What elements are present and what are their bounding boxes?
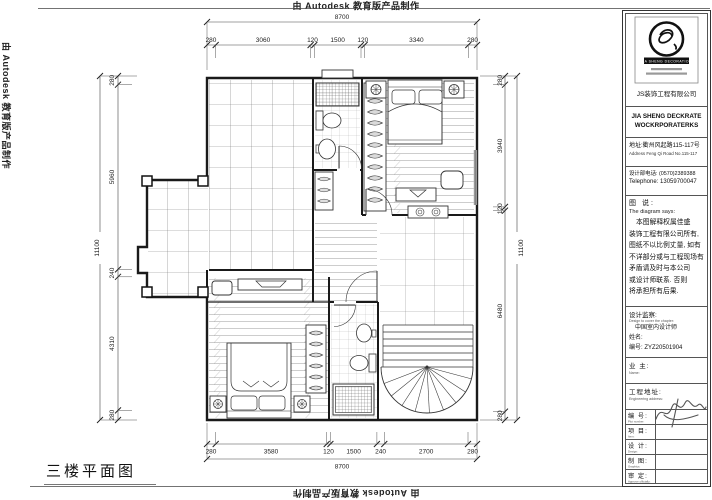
row-label-en: Design: — [628, 450, 652, 454]
toilet-1-tank — [316, 111, 323, 130]
shower-tray-1 — [316, 83, 359, 106]
row-design: 设 计:Design: — [626, 440, 707, 455]
dim-label: 120 — [497, 203, 504, 214]
row-label: 设 计: — [628, 441, 655, 450]
dim-label: 280 — [497, 410, 504, 421]
toilet-2-bowl — [350, 356, 368, 371]
dim-bottom: 280 3580 120 1500 240 2700 280 8700 — [204, 423, 480, 471]
chair-1 — [441, 171, 463, 189]
design-supervision-section: 设计监察: Design to cover the chapter: 中国室内设… — [626, 307, 707, 358]
row-label-en: Plot number: — [628, 420, 652, 424]
dim-label: 280 — [206, 37, 217, 44]
flue-box — [322, 70, 353, 78]
dim-label: 11100 — [518, 239, 525, 256]
row-approve: 审 定:Approve officially: — [626, 470, 707, 484]
lamp-icon — [371, 85, 381, 95]
row-value — [656, 440, 707, 454]
plan-title-underline — [44, 484, 156, 485]
dim-label: 280 — [109, 74, 116, 85]
floor-plan-svg: 8700 280 3060 120 1500 120 3340 280 — [0, 0, 712, 500]
dim-label: 11100 — [94, 239, 101, 256]
company-logo-section: JIA SHENG DECORATION JS装饰工程有限公司 — [626, 14, 707, 107]
company-name-en: JIA SHENG DECKRATE WOCKRPORATERKS — [626, 107, 707, 138]
drawing-sheet: 由 Autodesk 教育版产品制作 由 Autodesk 教育版产品制作 由 … — [0, 0, 712, 500]
address-section: 地址:衢州风起路115-117号 Address Feng Qi Road No… — [626, 138, 707, 167]
terrace-tiles — [209, 80, 312, 269]
dim-label: 3340 — [409, 37, 424, 44]
dim-label: 1500 — [346, 449, 361, 456]
project-address-label: 工程地址: — [629, 386, 704, 396]
dim-label: 120 — [357, 37, 368, 44]
phone-cn: 设计部电话: (0570)2389388 — [629, 169, 704, 177]
says-line: 图纸不以比例丈量, 如有 — [629, 240, 704, 252]
wardrobe-2 — [306, 325, 326, 393]
sink-2 — [357, 324, 372, 342]
dim-label: 3940 — [497, 138, 504, 153]
row-label: 制 图: — [628, 456, 655, 465]
dim-label: 1500 — [330, 37, 345, 44]
says-line: 将承担所有后果. — [629, 286, 704, 298]
supervision-line: 中国室内设计师 — [629, 323, 704, 333]
phone-section: 设计部电话: (0570)2389388 Telephone: 13059700… — [626, 167, 707, 196]
fan-stairs — [381, 366, 473, 413]
logo-circle — [650, 23, 683, 56]
dim-right: 280 3940 120 6480 280 11100 — [480, 73, 526, 423]
says-line: 不详部分或与工程现场有 — [629, 252, 704, 264]
supervision-line: 姓名: — [629, 333, 704, 343]
dim-label: 8700 — [335, 14, 350, 21]
row-value — [656, 455, 707, 469]
title-block: JIA SHENG DECORATION JS装饰工程有限公司 JIA SHEN… — [622, 10, 711, 487]
logo-monogram-icon — [659, 30, 676, 50]
stool-2 — [212, 281, 232, 295]
owner-label: 业 主: — [629, 360, 704, 370]
row-label-en: Graphics: — [628, 465, 652, 469]
row-value — [656, 410, 707, 424]
lamp-icon — [298, 400, 307, 409]
says-heading-cn: 图 说: — [629, 198, 704, 208]
row-label: 审 定: — [628, 471, 655, 480]
dim-label: 280 — [109, 409, 116, 420]
dim-label: 2700 — [419, 449, 434, 456]
row-label-en: Approve officially: — [628, 480, 652, 484]
company-en-line1: JIA SHENG DECKRATE — [626, 113, 707, 122]
company-name-cn: JS装饰工程有限公司 — [626, 88, 707, 98]
title-block-inner: JIA SHENG DECORATION JS装饰工程有限公司 JIA SHEN… — [625, 13, 708, 484]
row-label: 项 目: — [628, 426, 655, 435]
row-drafting: 制 图:Graphics: — [626, 455, 707, 470]
terrace-extension-tiles — [148, 181, 208, 296]
owner-label-en: Name: — [629, 371, 704, 375]
says-line: 本图解释权属佳盛 — [629, 217, 704, 229]
says-heading-en: The diagram says: — [629, 209, 704, 215]
row-plot-number: 编 号:Plot number: — [626, 410, 707, 425]
spiral-staircase — [381, 325, 473, 413]
dim-label: 280 — [497, 74, 504, 85]
toilet-2-tank — [369, 354, 376, 372]
dim-label: 6480 — [497, 303, 504, 318]
dim-top: 8700 280 3060 120 1500 120 3340 280 — [204, 14, 480, 70]
plan-title: 三楼平面图 — [44, 460, 142, 485]
cabinet-1 — [408, 206, 448, 218]
dim-label: 280 — [467, 449, 478, 456]
sink-1 — [319, 139, 336, 159]
dim-label: 280 — [206, 449, 217, 456]
dim-label: 280 — [467, 37, 478, 44]
dim-label: 5960 — [109, 169, 116, 184]
closet-1 — [364, 83, 386, 211]
logo-fineprint-line — [646, 73, 687, 75]
address-en: Address Feng Qi Road No.115-117 — [629, 151, 704, 156]
says-line: 装饰工程有限公司所有, — [629, 229, 704, 241]
diagram-says-section: 图 说: The diagram says: 本图解释权属佳盛 装饰工程有限公司… — [626, 196, 707, 307]
row-item: 项 目:Item: — [626, 425, 707, 440]
says-line: 或设计师联系. 否则 — [629, 275, 704, 287]
dim-left: 280 5960 240 4310 280 11100 — [93, 73, 138, 423]
dim-label: 120 — [323, 449, 334, 456]
owner-section: 业 主: Name: — [626, 358, 707, 384]
tv-cabinet-2 — [238, 279, 302, 290]
dim-label: 8700 — [335, 464, 350, 471]
sink-2-tap — [372, 330, 376, 337]
dim-label: 240 — [109, 267, 116, 278]
shower-tray-2 — [333, 384, 374, 415]
address-cn: 地址:衢州风起路115-117号 — [629, 140, 704, 149]
company-en-line2: WOCKRPORATERKS — [626, 122, 707, 131]
row-value — [656, 470, 707, 484]
project-address-label-en: Engineering address: — [629, 397, 704, 401]
dim-label: 120 — [307, 37, 318, 44]
dim-label: 240 — [375, 449, 386, 456]
dim-label: 4310 — [109, 336, 116, 351]
project-address-section: 工程地址: Engineering address: — [626, 384, 707, 410]
bed-2 — [227, 343, 291, 418]
toilet-1-bowl — [323, 113, 341, 128]
supervision-heading-cn: 设计监察: — [629, 309, 704, 319]
logo-fineprint-line — [651, 68, 682, 70]
window-right-wall — [474, 150, 477, 205]
dim-label: 3580 — [264, 449, 279, 456]
wardrobe-corridor — [315, 172, 333, 210]
row-label-en: Item: — [628, 435, 652, 439]
phone-en: Telephone: 13059700047 — [629, 179, 704, 185]
stair-hall-floor — [380, 217, 474, 325]
dim-label: 3060 — [256, 37, 271, 44]
lamp-icon — [449, 85, 459, 95]
supervision-line: 编号: ZYZ20501904 — [629, 343, 704, 353]
logo-band-text: JIA SHENG DECORATION — [641, 60, 692, 64]
says-line: 矛盾请及时与本公司 — [629, 263, 704, 275]
row-label: 编 号: — [628, 411, 655, 420]
desk-1 — [396, 188, 436, 201]
title-block-rows: 编 号:Plot number: 项 目:Item: 设 计:Design: 制… — [626, 410, 707, 484]
lamp-icon — [214, 400, 223, 409]
row-value — [656, 425, 707, 439]
company-logo: JIA SHENG DECORATION — [627, 14, 706, 86]
bed-1 — [388, 80, 442, 144]
